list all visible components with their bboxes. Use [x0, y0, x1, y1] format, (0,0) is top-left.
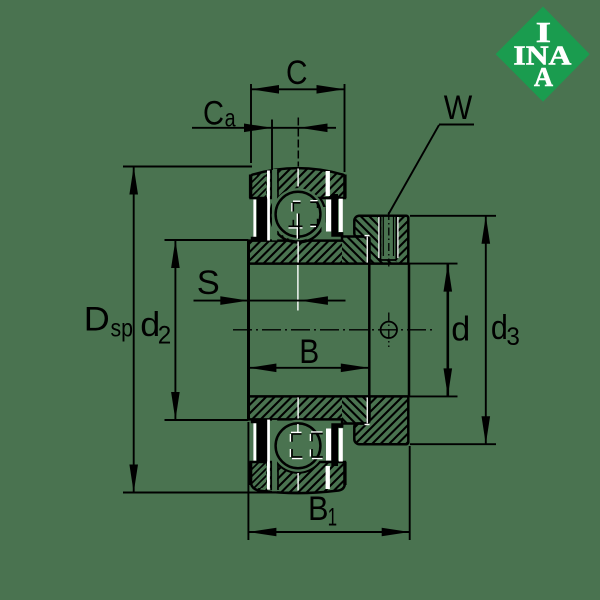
svg-text:3: 3: [506, 323, 520, 351]
svg-text:1: 1: [328, 504, 338, 532]
svg-text:W: W: [444, 89, 473, 127]
svg-text:C: C: [286, 54, 308, 92]
svg-text:B: B: [299, 333, 319, 371]
svg-text:S: S: [197, 264, 220, 302]
svg-text:d: d: [491, 309, 508, 347]
svg-text:D: D: [84, 301, 110, 339]
svg-text:sp: sp: [111, 315, 134, 343]
svg-text:d: d: [451, 311, 470, 349]
svg-text:C: C: [203, 95, 224, 133]
svg-text:2: 2: [158, 322, 172, 350]
svg-text:B: B: [308, 490, 329, 528]
svg-text:a: a: [225, 105, 236, 133]
svg-text:A: A: [534, 62, 553, 92]
